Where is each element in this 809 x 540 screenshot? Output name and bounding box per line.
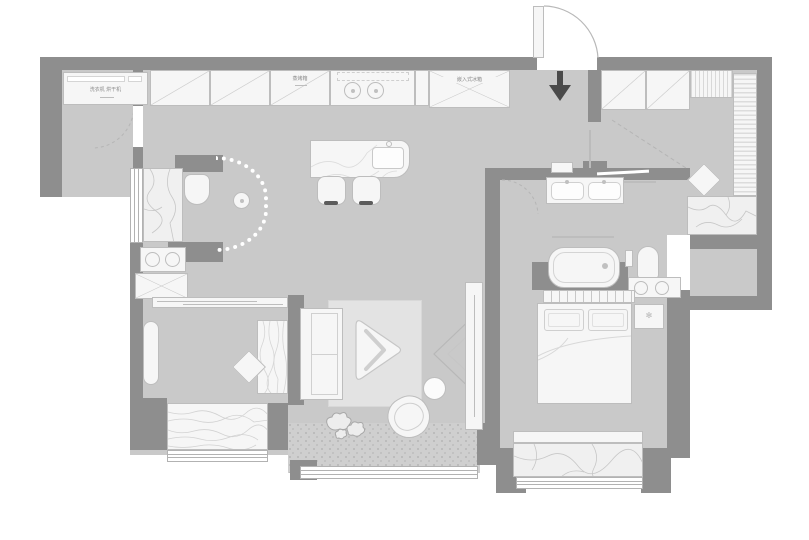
pillow-left [544, 309, 584, 331]
utility-door-swing-dashed [92, 104, 138, 152]
bedroom-door-swing-dashed [500, 178, 542, 218]
wall-light-box [551, 162, 573, 173]
sink-drain-dot [240, 199, 244, 203]
study-bench [143, 321, 159, 385]
sofa-cushions [311, 313, 338, 395]
sofa [300, 308, 343, 400]
vanity-sink-right [588, 182, 621, 200]
range-hood [337, 72, 409, 81]
coffee-table [350, 316, 404, 384]
slide-track-line-1 [157, 301, 257, 302]
headboard [543, 290, 635, 303]
wall-bottomleft-right-pier [268, 403, 288, 450]
wall-top-left-vertical [40, 57, 62, 197]
nightstand: ✻ [634, 304, 664, 329]
basin-left [634, 281, 648, 295]
fridge-cabinet: 嵌入式冰箱 [429, 70, 510, 108]
closet-wardrobe-1 [601, 70, 646, 110]
stove-burner-right [367, 82, 384, 99]
nightstand-flower-icon: ✻ [635, 313, 663, 319]
steam-oven-label: 蒸烤箱 [271, 76, 329, 82]
shower-marble [143, 168, 183, 242]
closet-marble-floor [687, 196, 757, 235]
burner-center-dot [374, 89, 378, 93]
powder-round-sink [233, 192, 250, 209]
entry-direction-arrow-icon [549, 71, 571, 102]
bath-shelf [625, 250, 633, 267]
wall-top-right [597, 57, 772, 70]
armchair-seat-line [389, 398, 428, 436]
bath-side-window [130, 168, 143, 243]
kitchen-cabinet-1 [150, 70, 210, 106]
kitchen-cabinet-oven: 蒸烤箱 [270, 70, 330, 106]
towel-rail [552, 236, 614, 238]
floor-plan: 洗衣机 烘干机 蒸烤箱 嵌入式冰箱 [0, 0, 809, 540]
laundry-cabinet: 洗衣机 烘干机 [63, 72, 148, 105]
balcony-window [300, 466, 478, 479]
closet-door-swing-dashed [610, 118, 690, 172]
wall-entry-pier [588, 70, 601, 122]
laundry-control-bar [67, 76, 125, 82]
basin-right [655, 281, 669, 295]
closet-hanging-clothes [733, 73, 757, 196]
vanity-sink-left [551, 182, 584, 200]
wall-top-main [40, 57, 537, 70]
wall-right-outer [757, 57, 772, 310]
study-sliding-door [152, 297, 288, 308]
vanity-basin-right [165, 252, 180, 267]
plant [320, 408, 368, 444]
entry-door-arc [541, 4, 601, 60]
steam-oven-sub-line [295, 85, 307, 86]
vanity-counter-line [624, 181, 656, 183]
slide-track-line-2 [183, 304, 283, 305]
study-window [167, 450, 268, 462]
bar-stool-1-back [324, 201, 338, 205]
inner-door-gap [133, 106, 143, 147]
kitchen-cabinet-3 [415, 70, 429, 106]
kitchen-cabinet-2 [210, 70, 270, 106]
vanity-faucet-right [602, 180, 606, 184]
wall-bedroom-left [485, 168, 500, 458]
bar-stool-2-back [359, 201, 373, 205]
stove-burner-left [344, 82, 361, 99]
wall-bottomleft-pier [130, 398, 167, 450]
powder-vanity [140, 247, 186, 272]
bed-bay-marble [513, 443, 643, 477]
fridge-label: 嵌入式冰箱 [430, 77, 509, 83]
laundry-control-knob [128, 76, 142, 82]
double-vanity [546, 177, 624, 204]
bathtub [548, 247, 620, 288]
burner-center-dot [351, 89, 355, 93]
bedroom-pocket-door [465, 282, 483, 430]
bath-storage-cabinet [135, 273, 188, 299]
pocket-door-line [474, 295, 475, 417]
wall-right-nook-bottom [690, 296, 772, 310]
toilet-powder [184, 174, 210, 205]
laundry-sub-line [100, 97, 114, 98]
wall-bedroom-right [667, 290, 690, 458]
bed-bay-window [516, 477, 643, 489]
toilet-master [637, 246, 659, 279]
wall-bedbay-right-pier [641, 448, 671, 493]
wall-closet-bath-divider [690, 235, 772, 249]
mirror-pendant-line [589, 130, 591, 168]
closet-wardrobe-2 [646, 70, 690, 110]
laundry-label: 洗衣机 烘干机 [64, 87, 147, 93]
island-sink [372, 147, 404, 169]
vanity-basin-left [145, 252, 160, 267]
blanket-fold-line [538, 332, 633, 362]
basin-cabinet [628, 277, 681, 298]
closet-dresser [690, 70, 733, 98]
study-wood-cabinet [257, 320, 288, 394]
vanity-faucet-left [565, 180, 569, 184]
study-bay-window [167, 403, 268, 450]
bed-bay-sill [513, 431, 643, 443]
island-faucet [386, 141, 392, 147]
bed [537, 303, 632, 404]
bathtub-drain [602, 263, 608, 269]
stove-counter [330, 70, 415, 106]
pillow-right [588, 309, 628, 331]
